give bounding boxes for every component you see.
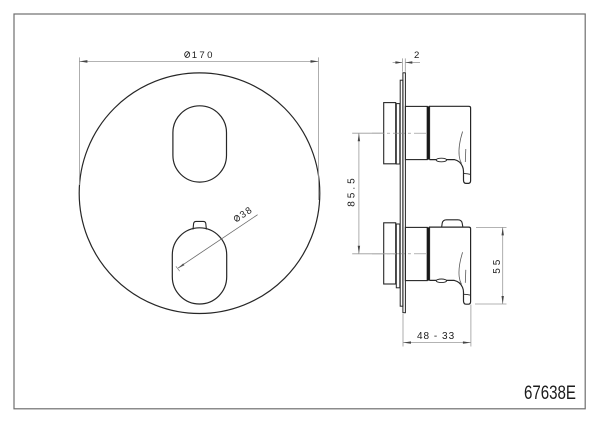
svg-text:85.5: 85.5 [346,175,357,206]
svg-text:48 - 33: 48 - 33 [417,331,455,342]
svg-text:170: 170 [192,50,215,61]
svg-text:55: 55 [492,257,503,274]
svg-text:2: 2 [414,50,419,61]
svg-text:67638E: 67638E [524,383,576,404]
